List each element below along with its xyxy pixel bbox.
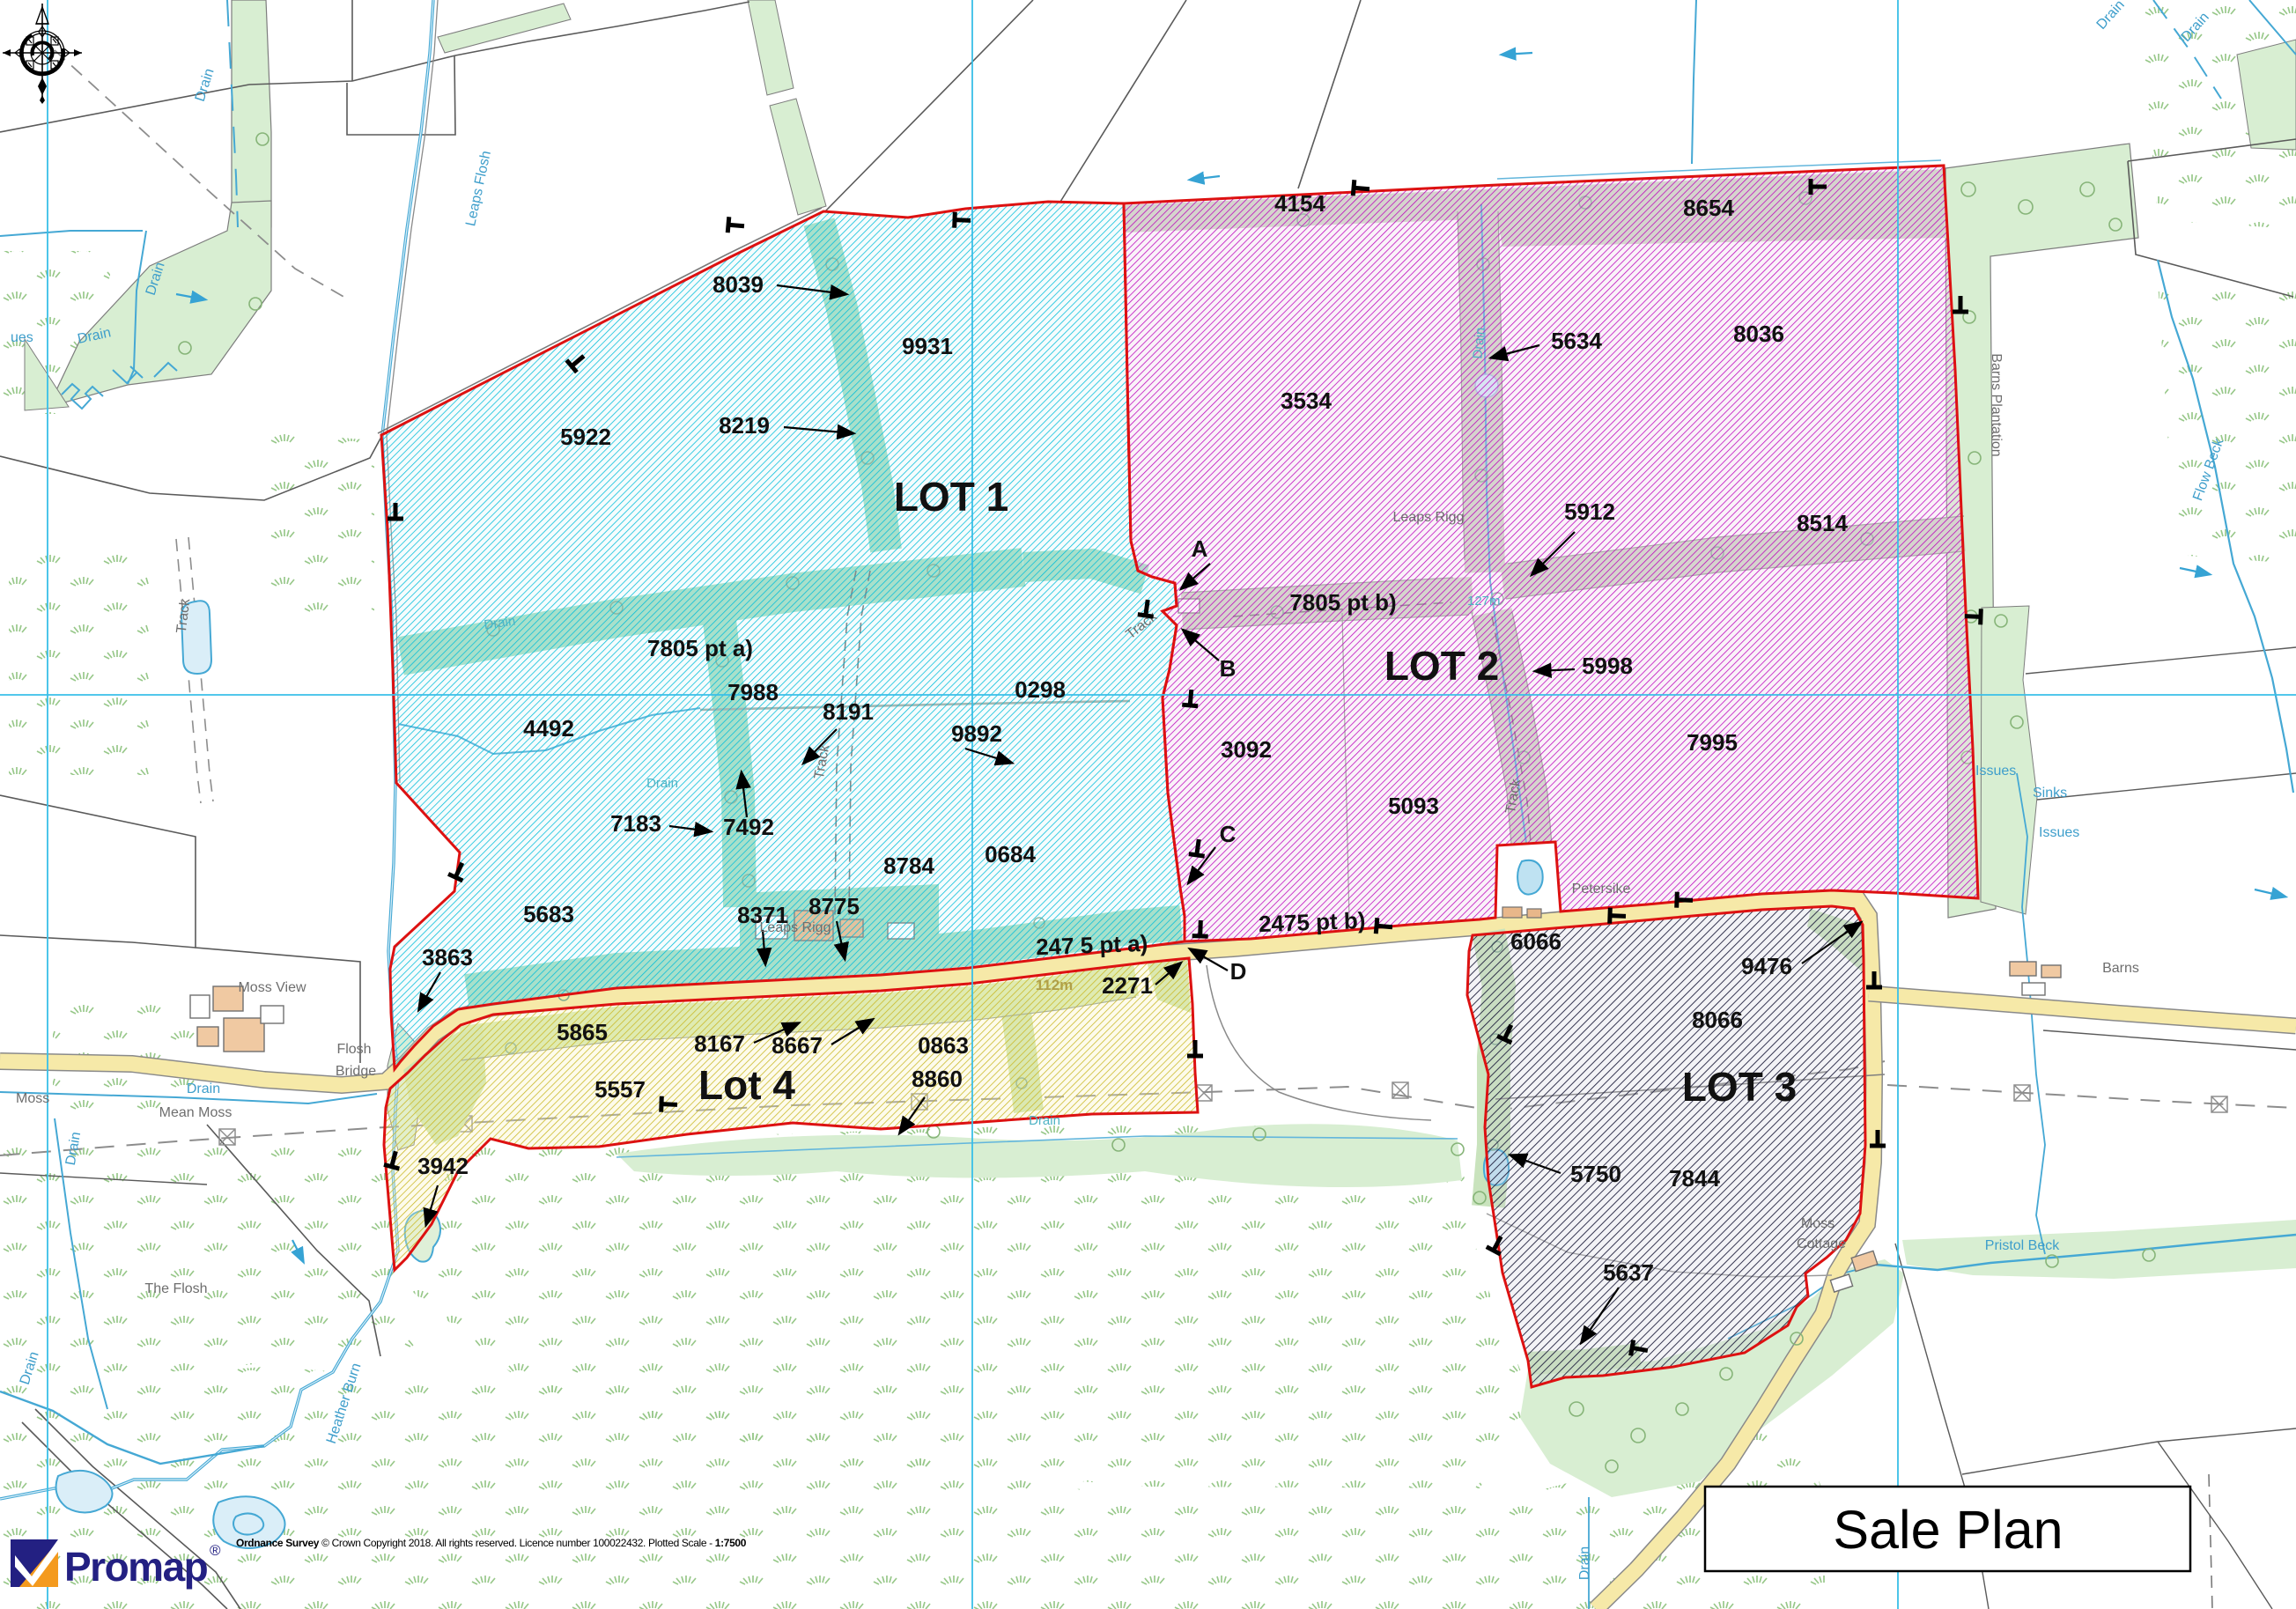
svg-text:8860: 8860 [912,1066,963,1092]
svg-text:Issues: Issues [2039,825,2079,840]
svg-text:Bridge: Bridge [336,1064,376,1079]
svg-text:Ordnance Survey © Crown Copyri: Ordnance Survey © Crown Copyright 2018. … [236,1537,747,1549]
svg-text:Sale Plan: Sale Plan [1833,1500,2063,1560]
svg-text:8036: 8036 [1733,321,1784,347]
svg-text:5557: 5557 [594,1076,646,1103]
svg-text:Drain: Drain [646,776,678,791]
svg-text:Sinks: Sinks [2033,786,2067,801]
svg-text:9892: 9892 [951,720,1002,747]
svg-text:Promap: Promap [64,1544,208,1590]
svg-text:6066: 6066 [1510,928,1561,955]
svg-text:9931: 9931 [902,333,953,359]
svg-text:8514: 8514 [1797,510,1848,536]
svg-text:5093: 5093 [1388,793,1439,819]
svg-text:The Flosh: The Flosh [144,1281,207,1296]
svg-text:5683: 5683 [523,901,574,927]
svg-text:Flosh: Flosh [336,1042,371,1057]
svg-text:Leaps Rigg: Leaps Rigg [1393,510,1465,525]
svg-text:4154: 4154 [1274,190,1325,217]
svg-text:247 5 pt a): 247 5 pt a) [1036,930,1148,960]
svg-text:7988: 7988 [727,679,779,705]
svg-text:Drain: Drain [1470,327,1488,359]
svg-text:7995: 7995 [1687,729,1738,756]
svg-text:Drain: Drain [1029,1113,1060,1128]
svg-text:3092: 3092 [1221,736,1272,763]
svg-text:ues: ues [11,330,33,345]
svg-text:LOT 2: LOT 2 [1384,643,1499,689]
svg-text:D: D [1230,958,1247,985]
svg-text:5865: 5865 [557,1019,608,1045]
svg-text:Issues: Issues [1975,764,2016,779]
svg-text:0298: 0298 [1015,676,1066,703]
svg-text:112m: 112m [1036,977,1074,993]
svg-text:3863: 3863 [422,944,473,971]
svg-text:5637: 5637 [1603,1259,1654,1286]
svg-text:2271: 2271 [1102,972,1153,999]
svg-text:B: B [1220,655,1237,682]
svg-text:8191: 8191 [823,698,874,725]
svg-text:5634: 5634 [1551,328,1602,354]
svg-text:Petersike: Petersike [1572,882,1631,897]
svg-text:7492: 7492 [723,814,774,840]
svg-text:Drain: Drain [1577,1546,1592,1580]
svg-text:Barns: Barns [2102,961,2139,976]
svg-text:7805 pt a): 7805 pt a) [647,635,753,661]
svg-text:Mean Moss: Mean Moss [159,1105,233,1120]
svg-text:Leaps Rigg: Leaps Rigg [760,920,831,935]
svg-text:C: C [1220,821,1237,847]
svg-text:Barns Plantation: Barns Plantation [1989,353,2004,456]
svg-text:5912: 5912 [1564,498,1615,525]
svg-text:8654: 8654 [1683,195,1734,221]
svg-text:7805 pt b): 7805 pt b) [1289,589,1396,616]
svg-text:7183: 7183 [610,810,661,837]
svg-text:4492: 4492 [523,715,574,742]
svg-text:LOT 1: LOT 1 [894,474,1008,520]
svg-text:Moss: Moss [16,1091,49,1106]
svg-text:3534: 3534 [1281,387,1332,414]
svg-text:8167: 8167 [694,1030,745,1057]
svg-text:127m: 127m [1467,594,1501,609]
svg-text:0863: 0863 [918,1032,969,1059]
svg-text:9476: 9476 [1741,953,1792,979]
svg-text:5998: 5998 [1582,653,1633,679]
svg-text:2475 pt b): 2475 pt b) [1259,907,1366,937]
svg-text:8775: 8775 [808,893,860,919]
svg-text:0684: 0684 [985,841,1036,867]
svg-text:®: ® [210,1542,221,1559]
svg-text:A: A [1192,535,1208,562]
svg-text:8784: 8784 [883,852,934,879]
svg-text:Moss View: Moss View [238,980,306,995]
svg-text:7844: 7844 [1669,1165,1720,1192]
svg-text:Cottage: Cottage [1797,1236,1846,1251]
svg-text:Moss: Moss [1801,1216,1835,1231]
svg-text:LOT 3: LOT 3 [1682,1064,1797,1110]
svg-text:8219: 8219 [719,412,770,439]
svg-text:5922: 5922 [560,424,611,450]
svg-text:8039: 8039 [712,271,764,298]
svg-text:Pristol Beck: Pristol Beck [1985,1238,2060,1253]
svg-text:Drain: Drain [187,1081,220,1096]
svg-text:3942: 3942 [417,1153,469,1179]
svg-text:8066: 8066 [1692,1007,1743,1033]
svg-text:5750: 5750 [1570,1161,1621,1187]
svg-text:8667: 8667 [771,1032,823,1059]
svg-text:Lot 4: Lot 4 [698,1062,795,1108]
